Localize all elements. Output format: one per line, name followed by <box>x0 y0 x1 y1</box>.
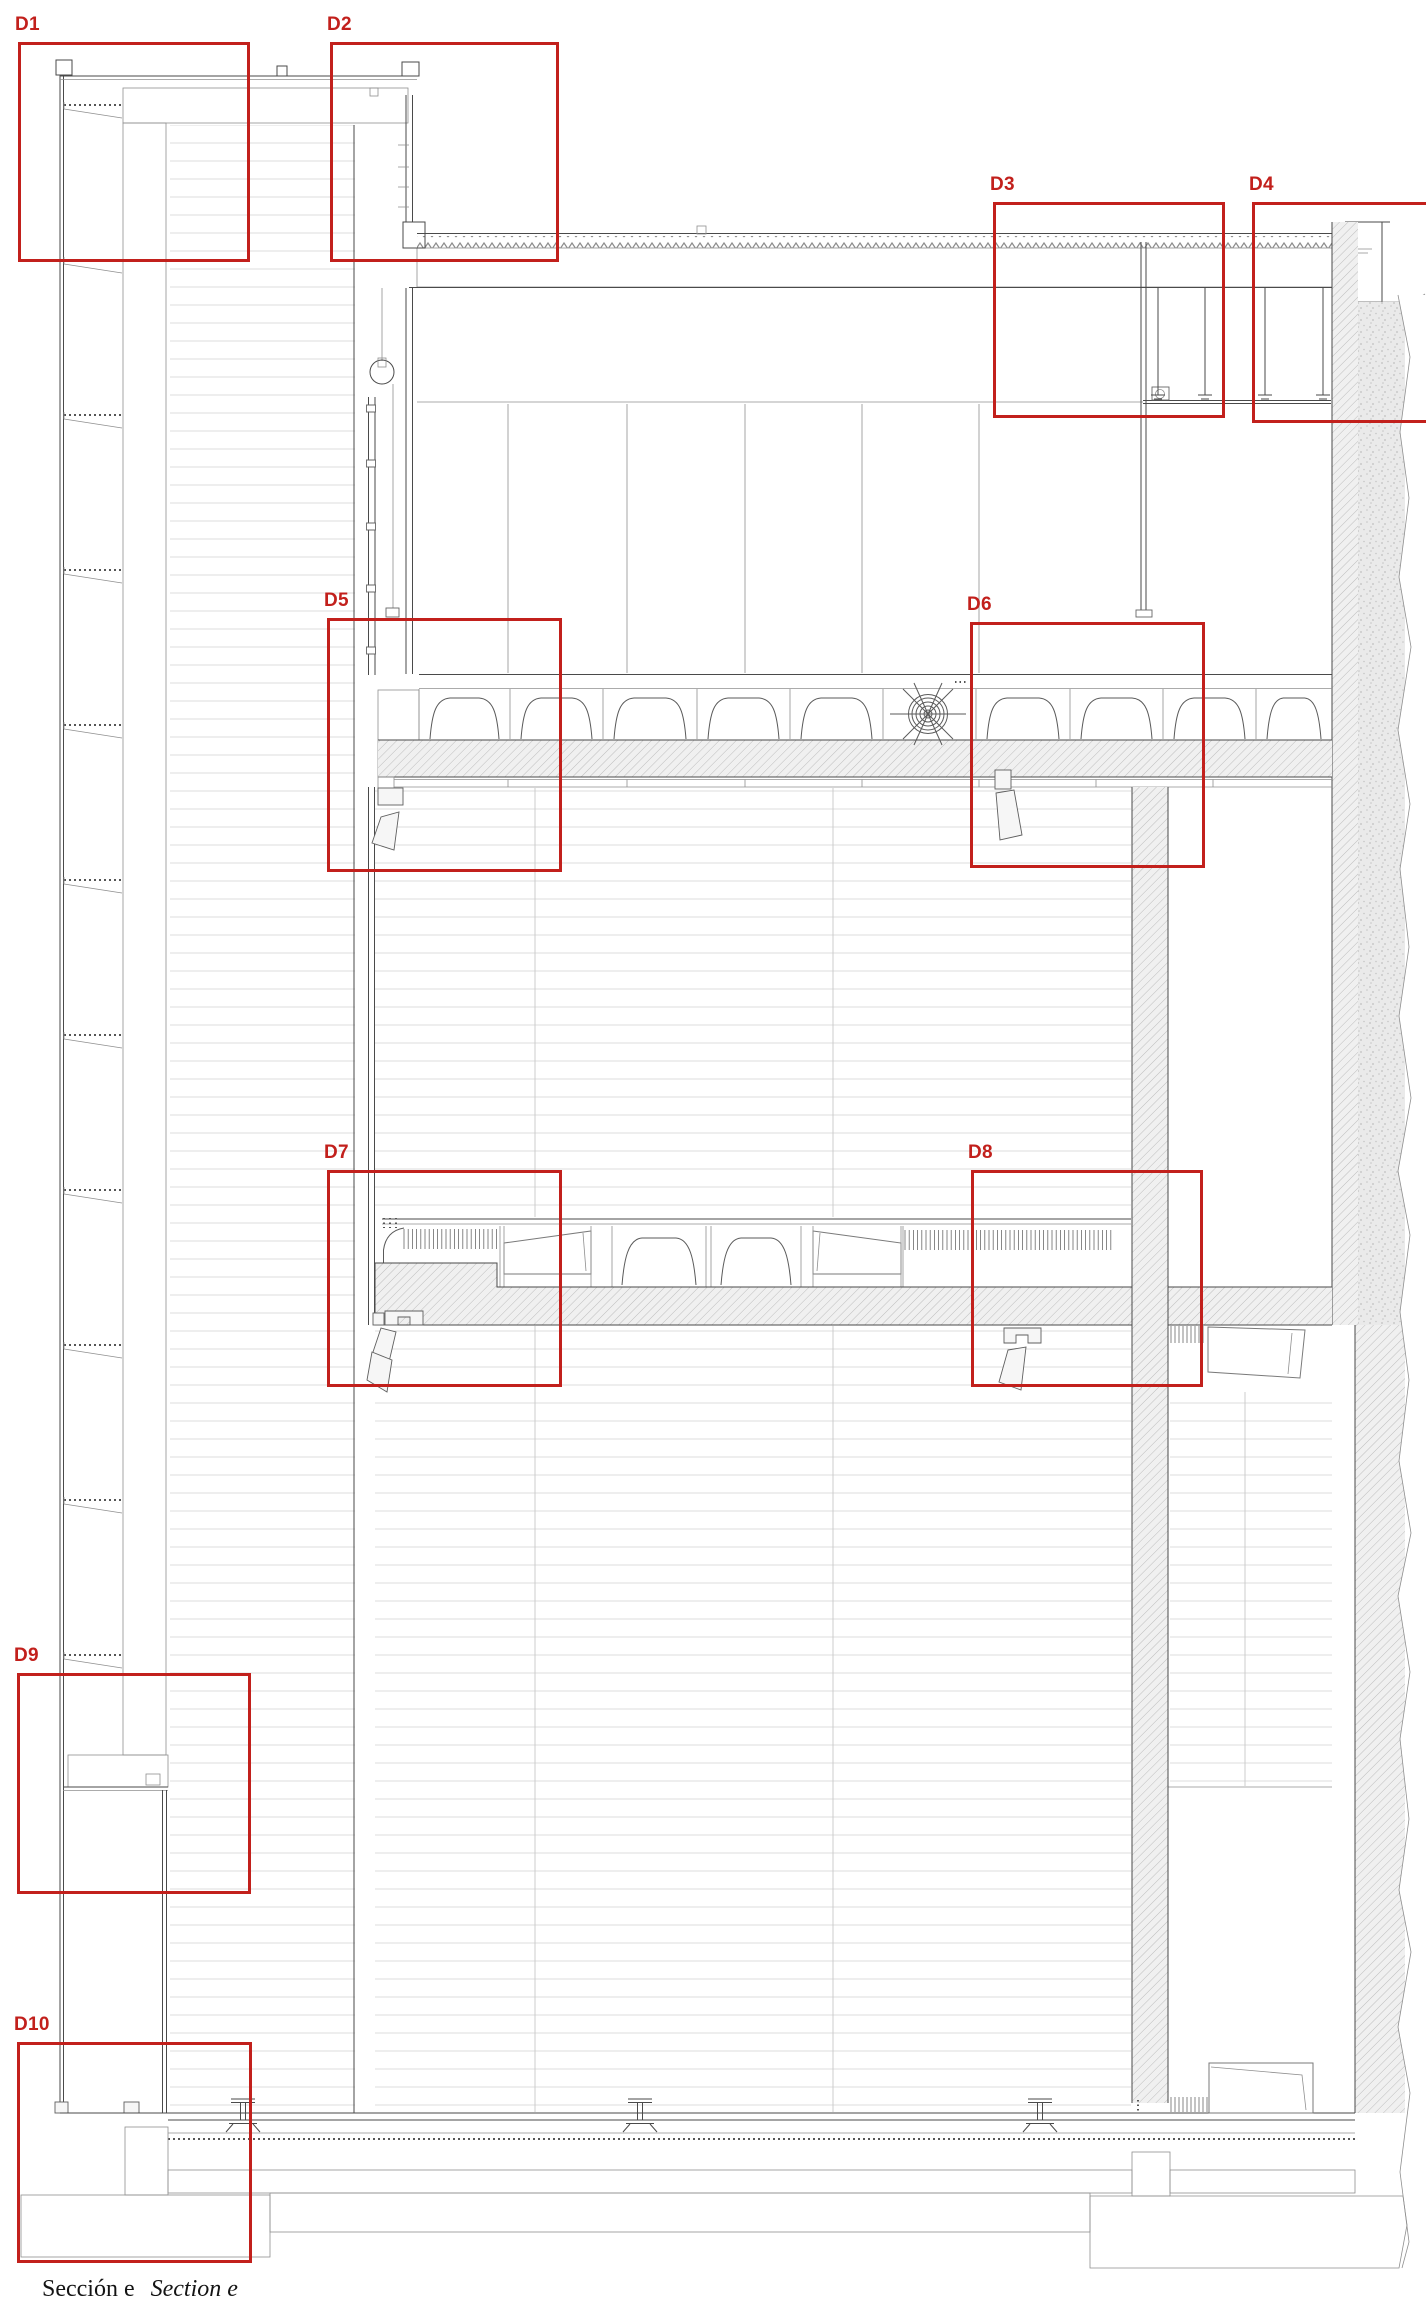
callout-box-D7 <box>327 1170 562 1387</box>
callout-box-D3 <box>993 202 1225 418</box>
right-wall <box>1332 222 1426 2268</box>
callout-box-D1 <box>18 42 250 262</box>
callout-label-D7: D7 <box>324 1142 349 1164</box>
partition-wall <box>1132 787 1168 2103</box>
callout-box-D2 <box>330 42 559 262</box>
caption-spanish: Sección e <box>42 2276 135 2302</box>
callout-box-D6 <box>970 622 1205 868</box>
callout-label-D3: D3 <box>990 174 1015 196</box>
callout-label-D1: D1 <box>15 14 40 36</box>
callout-label-D5: D5 <box>324 590 349 612</box>
callout-box-D5 <box>327 618 562 872</box>
callout-box-D10 <box>17 2042 252 2263</box>
callout-label-D10: D10 <box>14 2014 50 2036</box>
callout-label-D2: D2 <box>327 14 352 36</box>
drawing-caption: Sección eSection e <box>42 2276 238 2303</box>
callout-box-D4 <box>1252 202 1426 423</box>
ceiling-fan-icon <box>890 683 966 745</box>
callout-label-D6: D6 <box>967 594 992 616</box>
architectural-section-sheet: { "document": { "caption_es": "Sección e… <box>0 0 1426 2310</box>
callout-label-D4: D4 <box>1249 174 1274 196</box>
callout-box-D9 <box>17 1673 251 1894</box>
callout-label-D9: D9 <box>14 1645 39 1667</box>
callout-label-D8: D8 <box>968 1142 993 1164</box>
caption-english: Section e <box>151 2276 238 2302</box>
callout-box-D8 <box>971 1170 1203 1387</box>
